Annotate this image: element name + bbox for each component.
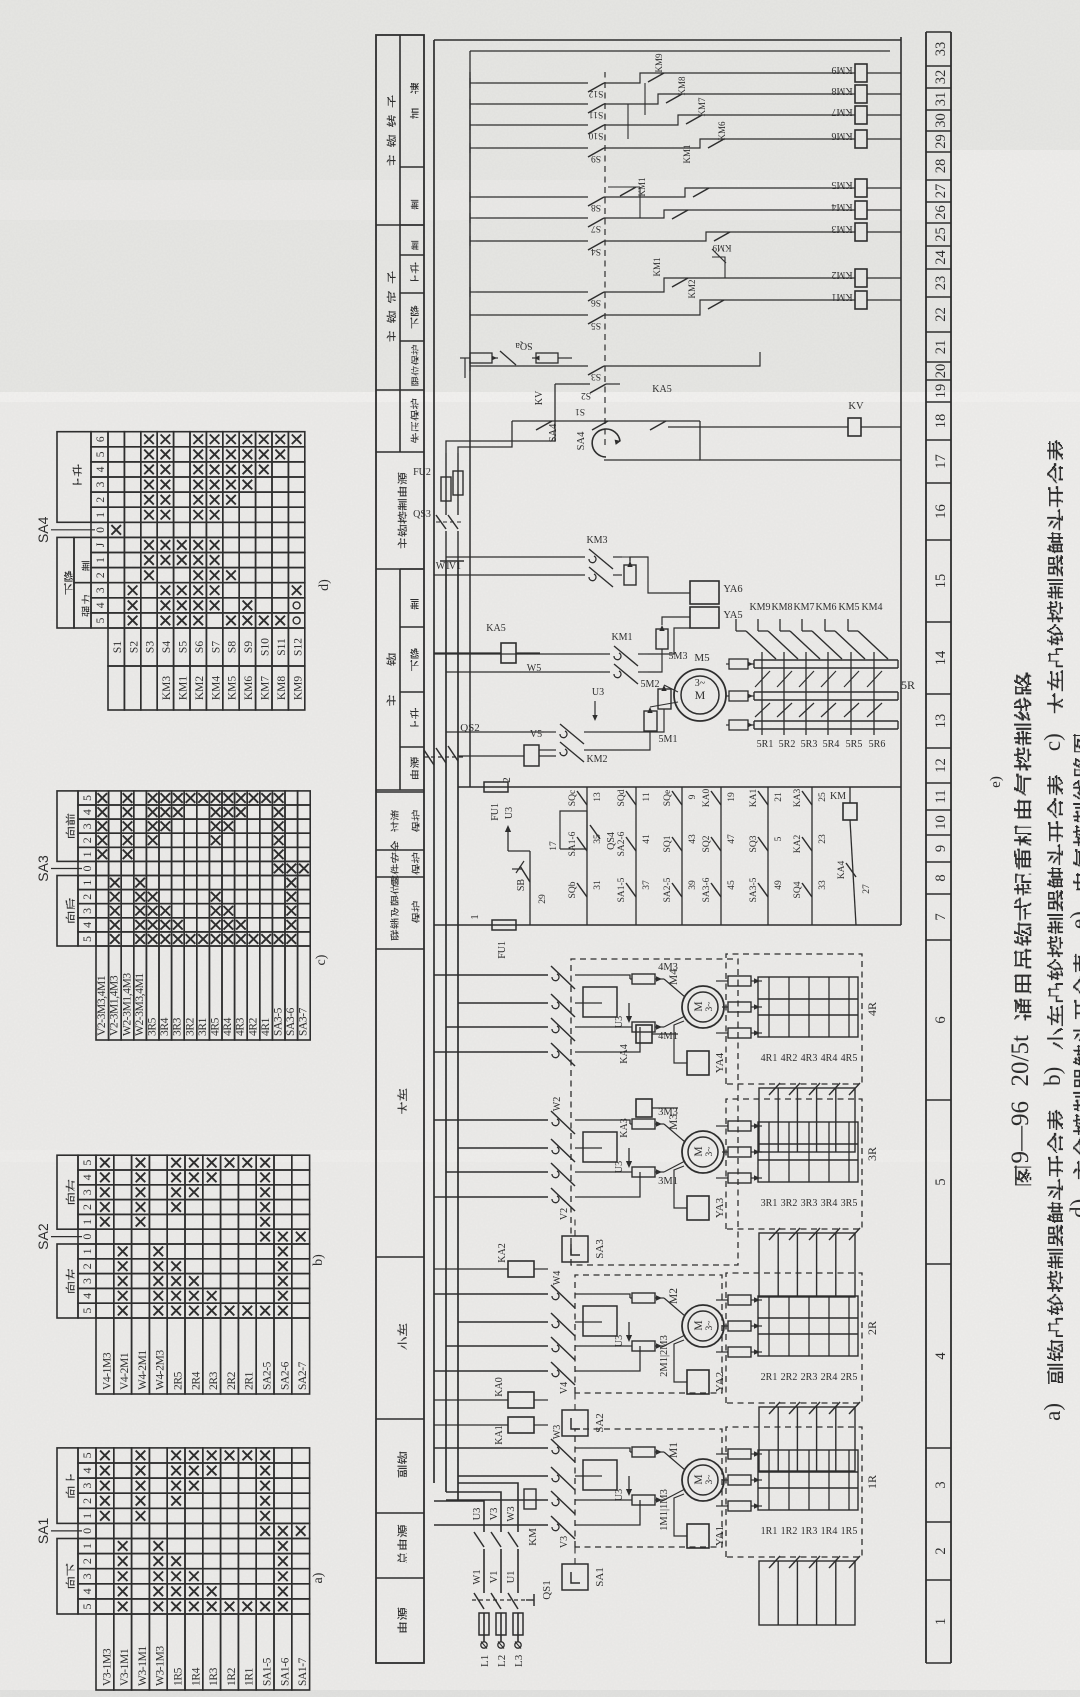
svg-text:1R3: 1R3: [208, 1667, 220, 1686]
svg-text:W4-2M1: W4-2M1: [137, 1350, 149, 1390]
svg-text:30: 30: [933, 113, 949, 128]
svg-text:10: 10: [933, 815, 949, 830]
svg-text:4R2: 4R2: [247, 1017, 259, 1036]
svg-text:SA1-7: SA1-7: [297, 1657, 309, 1686]
svg-text:5M1: 5M1: [659, 734, 678, 745]
svg-text:b): b): [311, 1254, 326, 1266]
svg-text:1: 1: [80, 1219, 94, 1225]
svg-text:V3: V3: [559, 1536, 570, 1548]
svg-text:2: 2: [95, 572, 107, 578]
svg-text:31: 31: [933, 92, 949, 107]
svg-text:KM3: KM3: [586, 535, 607, 546]
svg-text:YA1: YA1: [714, 1526, 726, 1546]
svg-text:4: 4: [95, 602, 107, 608]
svg-text:2: 2: [80, 1498, 94, 1504]
svg-text:QS1: QS1: [541, 1580, 553, 1600]
svg-text:M5: M5: [694, 652, 710, 664]
svg-text:KM: KM: [527, 1528, 539, 1546]
svg-text:4: 4: [933, 1352, 949, 1360]
svg-text:V2-3M1,4M3: V2-3M1,4M3: [109, 975, 121, 1036]
svg-text:V1: V1: [449, 561, 461, 572]
svg-text:2: 2: [80, 1558, 94, 1564]
svg-text:3: 3: [95, 587, 107, 593]
svg-text:5M3: 5M3: [669, 651, 688, 662]
svg-text:d): d): [317, 579, 332, 591]
svg-text:23: 23: [818, 834, 828, 844]
svg-text:2: 2: [80, 1263, 94, 1269]
svg-text:2R1: 2R1: [761, 1372, 778, 1383]
svg-text:5R2: 5R2: [779, 739, 796, 750]
svg-text:3R: 3R: [865, 1147, 879, 1161]
svg-text:V5: V5: [530, 729, 542, 740]
svg-text:U3: U3: [592, 687, 604, 698]
svg-text:W3-1M1: W3-1M1: [137, 1646, 149, 1686]
svg-text:9: 9: [933, 845, 949, 852]
svg-text:32: 32: [933, 70, 949, 85]
svg-text:KM2: KM2: [194, 676, 206, 701]
svg-text:3~: 3~: [705, 1002, 715, 1012]
svg-text:5: 5: [80, 936, 94, 942]
svg-text:S9: S9: [243, 641, 255, 653]
svg-text:5R1: 5R1: [757, 739, 774, 750]
svg-text:31: 31: [593, 880, 603, 890]
svg-text:SA2-7: SA2-7: [297, 1361, 309, 1390]
svg-text:1R2: 1R2: [781, 1526, 798, 1537]
svg-text:KM9: KM9: [292, 676, 304, 701]
svg-text:5: 5: [80, 1604, 94, 1610]
svg-text:QS3: QS3: [413, 509, 431, 520]
svg-text:FU2: FU2: [413, 467, 431, 478]
svg-text:45: 45: [727, 880, 737, 890]
svg-text:2R2: 2R2: [781, 1372, 798, 1383]
svg-text:YA2: YA2: [714, 1372, 726, 1392]
svg-text:2: 2: [80, 1204, 94, 1210]
svg-text:S11: S11: [276, 638, 288, 656]
svg-text:KM7: KM7: [260, 676, 272, 701]
svg-text:S4: S4: [161, 641, 173, 653]
svg-text:KM5: KM5: [838, 602, 859, 613]
svg-text:SQd: SQd: [617, 789, 627, 806]
svg-text:5: 5: [933, 1178, 949, 1185]
svg-text:4: 4: [80, 1293, 94, 1299]
svg-text:SB: SB: [516, 879, 527, 892]
svg-text:9—96: 9—96: [1007, 1101, 1034, 1164]
svg-text:12: 12: [933, 758, 949, 773]
svg-text:SA1-6: SA1-6: [279, 1657, 291, 1686]
svg-text:YA4: YA4: [714, 1052, 726, 1073]
svg-text:V3: V3: [489, 1508, 500, 1521]
svg-text:2R5: 2R5: [841, 1372, 858, 1383]
svg-text:2R: 2R: [865, 1321, 879, 1335]
svg-text:4R: 4R: [865, 1002, 879, 1016]
svg-text:3R5: 3R5: [147, 1017, 159, 1036]
svg-text:0: 0: [80, 1528, 94, 1534]
svg-text:3: 3: [80, 1483, 94, 1489]
svg-text:3~: 3~: [695, 678, 706, 689]
svg-text:SA3-5: SA3-5: [749, 877, 759, 902]
svg-text:1R4: 1R4: [821, 1526, 838, 1537]
svg-text:2: 2: [80, 894, 94, 900]
svg-text:KM6: KM6: [243, 676, 255, 701]
svg-text:1: 1: [95, 557, 107, 563]
svg-text:V1: V1: [489, 1571, 500, 1584]
svg-text:4: 4: [95, 466, 107, 472]
svg-text:3R4: 3R4: [159, 1017, 171, 1036]
svg-text:2: 2: [933, 1547, 949, 1554]
svg-text:S10: S10: [260, 638, 272, 656]
svg-text:3: 3: [80, 1573, 94, 1579]
svg-text:a): a): [1040, 1403, 1065, 1421]
svg-text:3R5: 3R5: [841, 1198, 858, 1209]
svg-text:4: 4: [80, 922, 94, 928]
svg-text:S8: S8: [227, 641, 239, 653]
svg-text:37: 37: [642, 880, 652, 890]
svg-text:U3: U3: [614, 1335, 625, 1347]
svg-text:2R4: 2R4: [821, 1372, 838, 1383]
svg-text:SA1-5: SA1-5: [617, 877, 627, 902]
svg-text:KM9: KM9: [654, 53, 664, 73]
svg-text:SA3: SA3: [594, 1239, 606, 1259]
svg-text:4: 4: [80, 809, 94, 815]
svg-text:W3-1M3: W3-1M3: [155, 1646, 167, 1686]
svg-text:S5: S5: [591, 320, 601, 330]
svg-text:SA2: SA2: [35, 1223, 51, 1250]
svg-text:d): d): [1066, 1199, 1080, 1218]
svg-text:2: 2: [80, 837, 94, 843]
svg-text:M: M: [693, 1320, 705, 1330]
svg-text:KV: KV: [848, 401, 864, 412]
svg-text:7: 7: [933, 913, 949, 920]
svg-text:KM7: KM7: [793, 602, 814, 613]
svg-text:KM6: KM6: [815, 602, 836, 613]
svg-text:KA1: KA1: [749, 789, 759, 808]
svg-text:KA3: KA3: [793, 789, 803, 808]
svg-text:1: 1: [80, 1513, 94, 1519]
svg-text:KM8: KM8: [276, 676, 288, 701]
svg-text:W2-3M1,4M3: W2-3M1,4M3: [121, 973, 133, 1036]
svg-text:2R1: 2R1: [244, 1371, 256, 1390]
svg-text:11: 11: [933, 790, 949, 804]
svg-text:23: 23: [933, 276, 949, 291]
svg-text:26: 26: [933, 205, 949, 220]
svg-text:S9: S9: [591, 153, 601, 163]
svg-text:SQ2: SQ2: [702, 835, 712, 852]
svg-text:S12: S12: [588, 88, 603, 98]
svg-text:KM1: KM1: [611, 632, 632, 643]
svg-text:S6: S6: [591, 297, 601, 307]
svg-text:2R2: 2R2: [226, 1371, 238, 1390]
svg-text:c): c): [314, 954, 329, 965]
svg-text:KM9: KM9: [749, 602, 770, 613]
svg-text:SQ4: SQ4: [793, 881, 803, 898]
svg-text:W1: W1: [472, 1569, 483, 1584]
svg-text:SA2-5: SA2-5: [663, 877, 673, 902]
svg-text:3R3: 3R3: [801, 1198, 818, 1209]
svg-text:L1: L1: [479, 1655, 491, 1667]
svg-text:20: 20: [933, 364, 949, 379]
svg-text:29: 29: [538, 894, 548, 904]
svg-text:5: 5: [774, 836, 784, 841]
svg-text:19: 19: [727, 792, 737, 802]
svg-text:21: 21: [933, 340, 949, 355]
svg-text:W4-2M3: W4-2M3: [155, 1350, 167, 1390]
svg-text:KM9: KM9: [712, 243, 732, 253]
svg-text:KM7: KM7: [697, 97, 707, 117]
svg-text:5R: 5R: [901, 678, 915, 692]
svg-text:1R4: 1R4: [190, 1667, 202, 1686]
svg-text:3~: 3~: [705, 1147, 715, 1157]
svg-text:M1: M1: [668, 1442, 680, 1458]
svg-text:V4-1M3: V4-1M3: [101, 1352, 113, 1390]
svg-text:33: 33: [933, 42, 949, 57]
svg-text:W3: W3: [506, 1506, 517, 1521]
svg-text:S7: S7: [591, 223, 601, 233]
svg-text:S1: S1: [575, 406, 585, 416]
svg-text:V2: V2: [559, 1208, 570, 1220]
svg-text:5R5: 5R5: [846, 739, 863, 750]
svg-text:5: 5: [80, 795, 94, 801]
svg-text:KA2: KA2: [793, 835, 803, 854]
svg-text:9: 9: [688, 794, 698, 799]
svg-text:3: 3: [95, 481, 107, 487]
svg-text:11: 11: [642, 792, 652, 801]
svg-text:25: 25: [818, 792, 828, 802]
svg-text:SA2-6: SA2-6: [617, 831, 627, 856]
svg-text:KA3: KA3: [619, 1118, 630, 1137]
svg-text:SA2-6: SA2-6: [279, 1361, 291, 1390]
svg-text:KM4: KM4: [210, 676, 222, 701]
svg-text:5: 5: [80, 1452, 94, 1458]
svg-text:SQ1: SQ1: [663, 835, 673, 852]
svg-text:KA5: KA5: [652, 384, 671, 395]
svg-text:YA6: YA6: [723, 584, 742, 595]
svg-text:SA3-5: SA3-5: [273, 1007, 285, 1036]
svg-text:M4: M4: [668, 969, 680, 985]
svg-text:5R3: 5R3: [801, 739, 818, 750]
svg-text:3~: 3~: [705, 1475, 715, 1485]
svg-text:KM2: KM2: [687, 279, 697, 298]
svg-text:U3: U3: [504, 807, 515, 819]
svg-text:KM4: KM4: [861, 602, 882, 613]
svg-text:V4-2M1: V4-2M1: [119, 1352, 131, 1390]
svg-text:3R3: 3R3: [172, 1017, 184, 1036]
svg-text:KM1: KM1: [178, 676, 190, 701]
svg-text:5M2: 5M2: [641, 679, 660, 690]
svg-text:1: 1: [933, 1618, 949, 1625]
svg-text:3: 3: [80, 908, 94, 914]
svg-text:M: M: [695, 688, 706, 702]
svg-text:2R3: 2R3: [208, 1371, 220, 1390]
svg-text:S2: S2: [581, 390, 591, 400]
svg-text:0: 0: [80, 866, 94, 872]
svg-text:SA3-6: SA3-6: [285, 1007, 297, 1036]
svg-text:FU1: FU1: [497, 941, 508, 959]
svg-text:2R4: 2R4: [190, 1371, 202, 1390]
svg-text:1: 1: [80, 1543, 94, 1549]
svg-text:b): b): [1040, 1067, 1065, 1086]
svg-text:17: 17: [549, 841, 559, 851]
svg-text:SA1: SA1: [594, 1567, 606, 1587]
svg-text:S3: S3: [145, 641, 157, 653]
svg-text:U3: U3: [614, 1489, 625, 1501]
svg-text:KA0: KA0: [702, 789, 712, 808]
svg-text:KM6: KM6: [717, 121, 727, 141]
svg-text:M2: M2: [668, 1288, 680, 1304]
svg-text:1R1: 1R1: [244, 1667, 256, 1686]
svg-text:S1: S1: [112, 641, 124, 653]
svg-text:KM1: KM1: [682, 144, 692, 163]
svg-text:KM8: KM8: [677, 76, 687, 96]
svg-text:0: 0: [95, 527, 107, 533]
svg-text:4R4: 4R4: [821, 1053, 838, 1064]
svg-text:35: 35: [593, 834, 603, 844]
svg-text:13: 13: [933, 714, 949, 729]
svg-text:3M1: 3M1: [658, 1176, 678, 1187]
svg-text:29: 29: [933, 134, 949, 149]
svg-text:SA1-5: SA1-5: [262, 1657, 274, 1686]
svg-text:2R5: 2R5: [173, 1371, 185, 1390]
svg-text:1: 1: [80, 1248, 94, 1254]
svg-text:SA2-5: SA2-5: [262, 1361, 274, 1390]
svg-text:SQc: SQc: [568, 790, 578, 806]
svg-text:4R1: 4R1: [761, 1053, 778, 1064]
svg-text:SQa: SQa: [515, 340, 533, 351]
svg-text:3: 3: [933, 1481, 949, 1488]
svg-text:41: 41: [642, 834, 652, 844]
svg-text:SA3-7: SA3-7: [298, 1007, 310, 1036]
svg-text:KM5: KM5: [227, 676, 239, 701]
svg-text:27: 27: [933, 184, 949, 199]
svg-text:S4: S4: [591, 246, 601, 256]
svg-text:4R3: 4R3: [801, 1053, 818, 1064]
svg-text:U3: U3: [472, 1508, 483, 1521]
svg-text:KA2: KA2: [497, 1243, 508, 1262]
svg-text:2: 2: [95, 497, 107, 503]
svg-text:e): e): [988, 776, 1004, 788]
svg-text:KA4: KA4: [619, 1044, 630, 1063]
svg-text:1: 1: [95, 512, 107, 518]
svg-text:c): c): [1040, 733, 1065, 751]
svg-text:39: 39: [688, 880, 698, 890]
svg-text:3R2: 3R2: [781, 1198, 798, 1209]
svg-text:5: 5: [95, 451, 107, 457]
svg-text:KM2: KM2: [586, 754, 607, 765]
svg-text:S2: S2: [128, 641, 140, 653]
svg-text:L3: L3: [513, 1654, 525, 1667]
svg-text:47: 47: [727, 834, 737, 844]
svg-text:4: 4: [80, 1174, 94, 1180]
svg-text:13: 13: [593, 792, 603, 802]
svg-text:3: 3: [80, 823, 94, 829]
svg-text:1: 1: [469, 914, 481, 920]
svg-text:4R4: 4R4: [222, 1017, 234, 1036]
svg-text:S10: S10: [588, 130, 603, 140]
svg-text:1R3: 1R3: [801, 1526, 818, 1537]
svg-text:24: 24: [933, 250, 949, 265]
svg-text:1R5: 1R5: [173, 1667, 185, 1686]
svg-text:U1: U1: [506, 1571, 517, 1584]
svg-text:14: 14: [933, 650, 949, 665]
svg-text:S7: S7: [210, 641, 222, 653]
svg-text:1: 1: [80, 880, 94, 886]
svg-text:3: 3: [80, 1278, 94, 1284]
svg-text:KV: KV: [534, 390, 545, 405]
svg-text:SQe: SQe: [663, 790, 673, 806]
svg-text:5: 5: [95, 617, 107, 623]
svg-text:W4: W4: [552, 1271, 563, 1285]
svg-text:4R1: 4R1: [260, 1017, 272, 1036]
svg-text:KA0: KA0: [494, 1377, 505, 1396]
svg-text:SQ3: SQ3: [749, 835, 759, 852]
svg-text:5: 5: [80, 1160, 94, 1166]
svg-text:4: 4: [80, 1588, 94, 1594]
svg-text:YA3: YA3: [714, 1197, 726, 1218]
svg-text:1R: 1R: [865, 1475, 879, 1489]
svg-text:M: M: [693, 1474, 705, 1484]
svg-text:a): a): [311, 1572, 326, 1583]
svg-text:22: 22: [933, 307, 949, 322]
svg-text:4R2: 4R2: [781, 1053, 798, 1064]
svg-text:3R2: 3R2: [184, 1017, 196, 1036]
svg-text:SA4: SA4: [548, 423, 559, 442]
svg-text:S6: S6: [194, 641, 206, 653]
svg-text:KA1: KA1: [494, 1425, 505, 1444]
svg-text:25: 25: [933, 227, 949, 242]
svg-text:2R3: 2R3: [801, 1372, 818, 1383]
svg-text:M: M: [693, 1001, 705, 1011]
svg-text:21: 21: [774, 792, 784, 802]
svg-text:SA2: SA2: [594, 1413, 606, 1433]
svg-text:43: 43: [688, 834, 698, 844]
svg-text:J: J: [95, 542, 107, 547]
svg-text:5: 5: [80, 1308, 94, 1314]
svg-text:FU1: FU1: [490, 803, 501, 821]
svg-text:M: M: [693, 1146, 705, 1156]
svg-text:1R1: 1R1: [761, 1526, 778, 1537]
svg-text:4R5: 4R5: [841, 1053, 858, 1064]
svg-text:2M1|2M3: 2M1|2M3: [659, 1335, 670, 1377]
svg-text:1M1|1M3: 1M1|1M3: [659, 1489, 670, 1531]
svg-text:3R1: 3R1: [197, 1017, 209, 1036]
svg-text:KM: KM: [830, 791, 846, 802]
svg-text:W2: W2: [552, 1097, 563, 1111]
svg-text:S11: S11: [589, 109, 604, 119]
svg-text:6: 6: [933, 1016, 949, 1023]
svg-text:1R2: 1R2: [226, 1667, 238, 1686]
svg-text:SA3-6: SA3-6: [702, 877, 712, 902]
svg-text:17: 17: [933, 454, 949, 469]
svg-text:6: 6: [95, 436, 107, 442]
svg-text:KM1: KM1: [652, 257, 662, 276]
svg-text:KA4: KA4: [837, 861, 847, 880]
svg-text:5R6: 5R6: [869, 739, 886, 750]
svg-text:KA5: KA5: [486, 623, 505, 634]
svg-text:SA1: SA1: [35, 1517, 51, 1544]
svg-text:W2-3M3,4M1: W2-3M3,4M1: [134, 973, 146, 1036]
svg-text:S8: S8: [591, 202, 601, 212]
svg-text:1: 1: [80, 851, 94, 857]
svg-text:SA1-6: SA1-6: [568, 831, 578, 856]
svg-text:3~: 3~: [705, 1321, 715, 1331]
svg-text:SQb: SQb: [568, 881, 578, 898]
svg-text:S5: S5: [178, 641, 190, 653]
svg-text:e): e): [1066, 911, 1080, 929]
svg-text:SA4: SA4: [35, 516, 51, 543]
svg-text:4M1: 4M1: [658, 1031, 678, 1042]
svg-text:V4: V4: [559, 1382, 570, 1394]
svg-text:M3: M3: [668, 1114, 680, 1130]
svg-text:4: 4: [80, 1468, 94, 1474]
